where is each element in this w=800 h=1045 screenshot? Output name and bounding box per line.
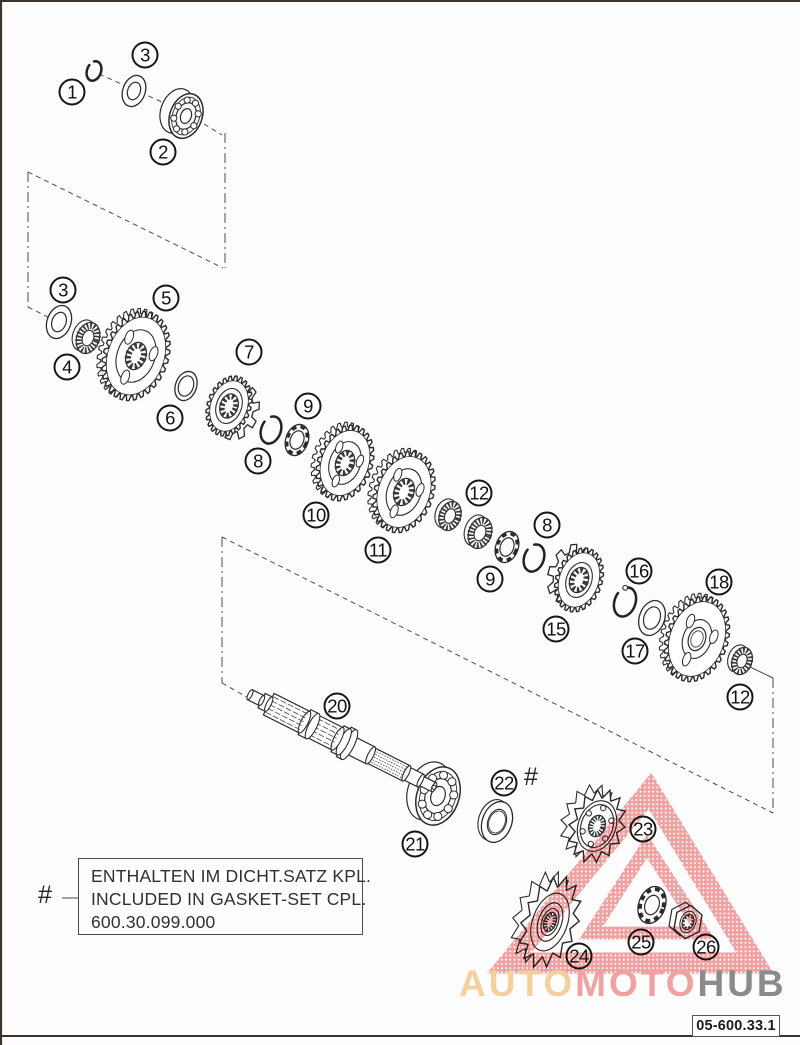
part-snap-ring-8b [524,545,545,572]
note-part-number: 600.30.099.000 [91,911,362,934]
drawing-number-box: 05-600.33.1 [692,1015,780,1037]
part-main-shaft-20 [241,679,443,803]
part-lock-washer-25 [633,883,671,928]
part-sprocket-24 [511,872,580,967]
part-splined-washer-9a [281,421,313,459]
gasket-marker-hash: # [38,881,52,910]
part-washer-3b [42,302,76,342]
part-circlip-1 [87,61,102,80]
seal-ring-hash: # [524,763,538,792]
part-nut-26 [669,902,702,938]
part-ball-bearing-2 [154,84,209,143]
part-needle-bearing-4 [68,317,104,357]
part-gear-18 [659,593,736,684]
part-snap-ring-8a [261,417,282,444]
part-gear-11 [368,448,441,535]
part-circlip-16 [614,585,636,616]
part-needle-bearing-12a [431,496,465,534]
part-washer-3a [118,72,150,110]
part-gear-10 [311,422,378,502]
part-sliding-gear-15 [548,544,607,613]
note-line-de: ENTHALTEN IM DICHT.SATZ KPL. [91,865,362,888]
part-sprocket-23 [561,785,625,862]
note-line-en: INCLUDED IN GASKET-SET CPL. [91,888,362,911]
part-needle-bearing-12c [724,642,756,678]
part-splined-washer-9b [491,528,523,566]
part-washer-6 [171,368,201,403]
drawing-number: 05-600.33.1 [696,1018,776,1034]
part-seal-ring-22 [473,795,518,847]
part-gear-5 [96,308,176,403]
part-needle-bearing-12b [460,512,496,552]
gasket-note-box: ENTHALTEN IM DICHT.SATZ KPL. INCLUDED IN… [78,858,363,935]
part-sliding-gear-7 [203,375,259,439]
parts-diagram-page: 1323547698121081191618151712202223212524… [0,0,800,1045]
